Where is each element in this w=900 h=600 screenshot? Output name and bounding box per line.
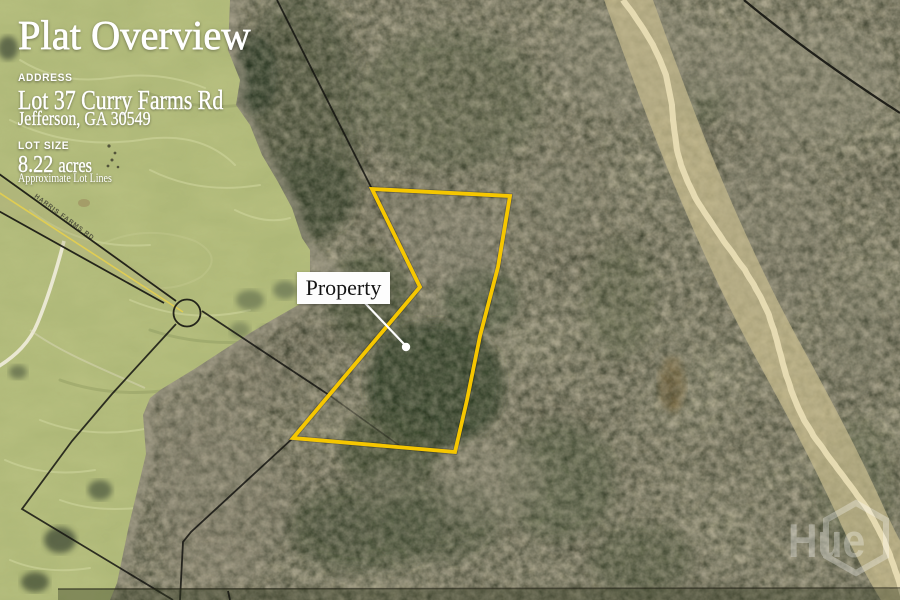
svg-text:Hue: Hue: [788, 515, 865, 567]
